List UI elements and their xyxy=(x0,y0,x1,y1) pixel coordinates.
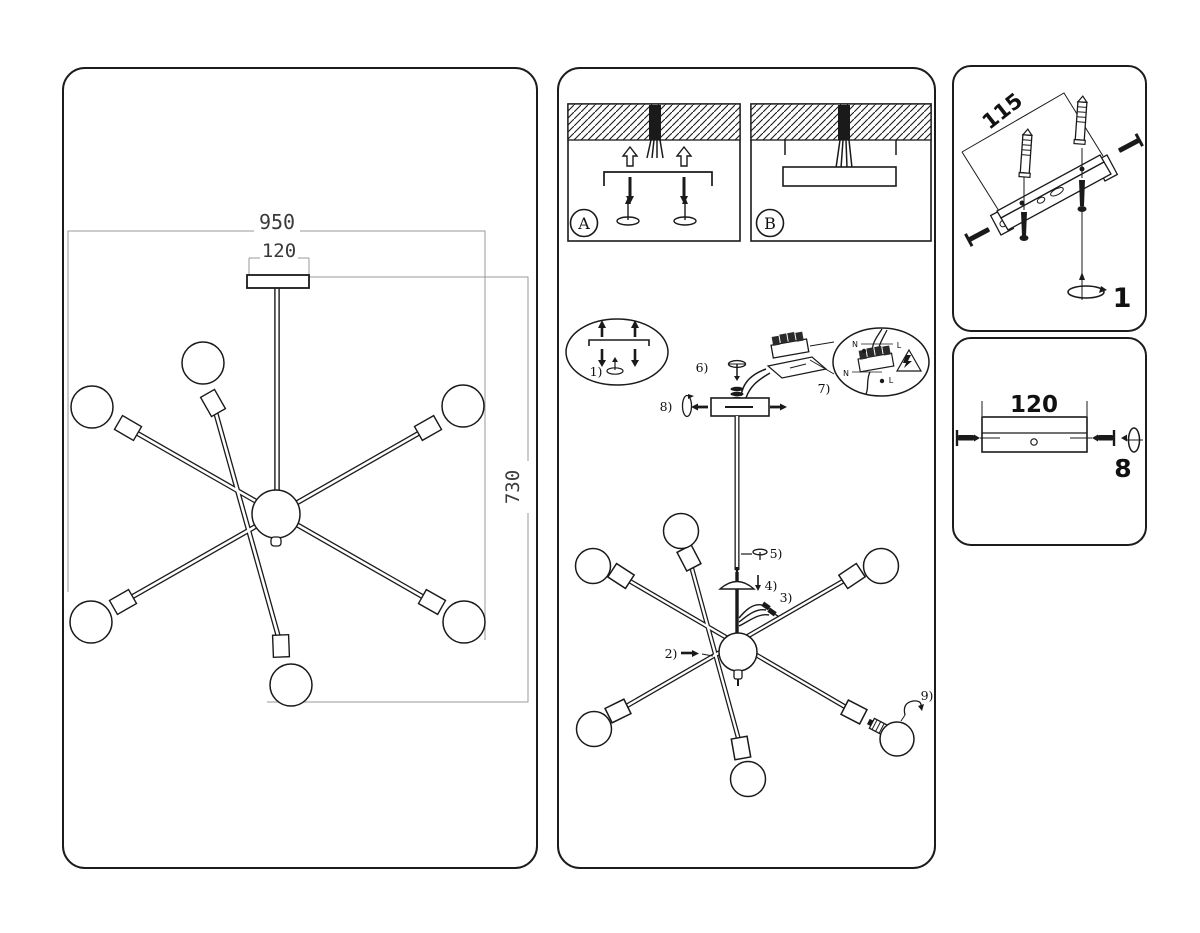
wire-l-bottom-label: L xyxy=(889,376,894,385)
overview-panel: 950 120 730 xyxy=(55,60,547,876)
bulb xyxy=(443,601,485,643)
mounted-canopy xyxy=(783,167,896,186)
step7-label: 7) xyxy=(818,381,831,396)
bulb xyxy=(71,386,113,428)
canopy-drawing xyxy=(982,417,1087,452)
bulb xyxy=(731,762,766,797)
assembly-panel: A B xyxy=(550,60,945,876)
wiring-detail-circle: N L N L xyxy=(833,328,929,396)
bulb xyxy=(182,342,224,384)
step9-label: 9) xyxy=(921,688,934,703)
bulb xyxy=(270,664,312,706)
canopy-qty-label: 8 xyxy=(1114,454,1131,483)
canopy-hardware-panel: 120 8 xyxy=(945,330,1155,553)
terminal-screw xyxy=(862,349,866,353)
wire-bundle-a xyxy=(649,105,661,140)
bulb xyxy=(442,385,484,427)
socket xyxy=(731,736,750,759)
center-hub xyxy=(719,633,757,671)
dim-height-label: 730 xyxy=(502,470,524,504)
bulb xyxy=(880,722,914,756)
step1-detail-oval: 1) xyxy=(566,319,668,385)
bracket-hardware-panel: 115 xyxy=(945,58,1155,339)
bulb xyxy=(576,549,611,584)
terminal-screw xyxy=(880,379,884,383)
wire-n-top-label: N xyxy=(852,340,858,349)
dim-width-label: 950 xyxy=(259,210,295,234)
step4-label: 4) xyxy=(765,578,778,593)
bracket-qty-label: 1 xyxy=(1113,283,1132,314)
ceiling-mounting-b: B xyxy=(751,104,931,241)
ceiling-mounting-a: A xyxy=(568,104,740,241)
center-hub xyxy=(252,490,300,538)
step8-label: 8) xyxy=(660,399,673,414)
canopy-dim-label: 120 xyxy=(1010,392,1058,418)
bulb xyxy=(70,601,112,643)
step2-label: 2) xyxy=(665,646,678,661)
instruction-sheet: 950 120 730 xyxy=(0,0,1200,933)
step1-label: 1) xyxy=(590,364,603,379)
wire-n-bottom-label: N xyxy=(843,369,849,378)
step-badge-a-label: A xyxy=(577,214,590,233)
dim-canopy-label: 120 xyxy=(262,240,296,262)
step6-label: 6) xyxy=(696,360,709,375)
hub-finial xyxy=(271,537,281,546)
bulb xyxy=(864,549,899,584)
overview-panel-border xyxy=(63,68,537,868)
hub-finial xyxy=(734,670,742,679)
socket xyxy=(273,635,290,658)
step-badge-b-label: B xyxy=(764,214,776,233)
wire-l-top-label: L xyxy=(897,341,902,350)
step5-label: 5) xyxy=(770,546,783,561)
bulb xyxy=(664,514,699,549)
ceiling-canopy xyxy=(247,275,309,288)
bulb xyxy=(577,712,612,747)
wire-bundle-b xyxy=(838,105,850,140)
step3-label: 3) xyxy=(780,590,793,605)
